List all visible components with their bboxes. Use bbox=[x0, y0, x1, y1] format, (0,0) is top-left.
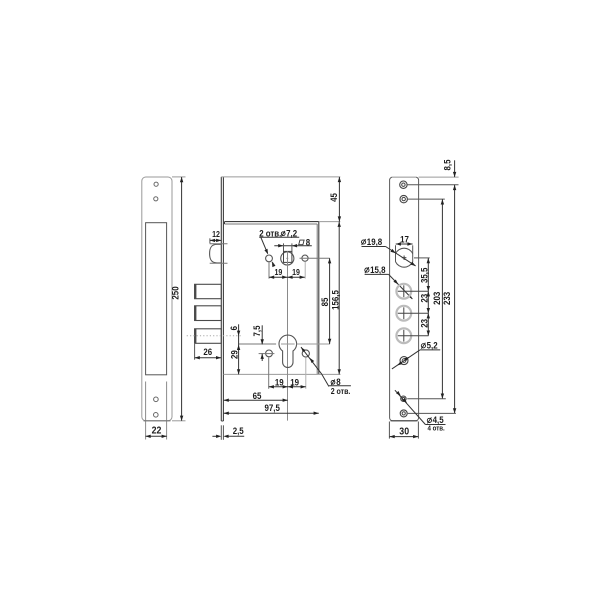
svg-text:19,8: 19,8 bbox=[367, 237, 383, 248]
svg-text:2,5: 2,5 bbox=[233, 425, 244, 436]
svg-text:203: 203 bbox=[432, 291, 443, 304]
svg-text:12: 12 bbox=[212, 230, 220, 240]
svg-text:85: 85 bbox=[319, 297, 330, 306]
svg-text:45: 45 bbox=[329, 193, 340, 202]
svg-text:19: 19 bbox=[290, 377, 299, 388]
svg-text:29: 29 bbox=[229, 350, 240, 359]
svg-text:7,5: 7,5 bbox=[251, 325, 262, 336]
svg-text:19: 19 bbox=[292, 268, 300, 278]
svg-text:6: 6 bbox=[229, 326, 240, 331]
svg-text:97,5: 97,5 bbox=[264, 403, 280, 414]
svg-text:35,5: 35,5 bbox=[419, 267, 430, 283]
svg-text:19: 19 bbox=[274, 268, 282, 278]
svg-text:250: 250 bbox=[170, 286, 181, 299]
svg-text:23: 23 bbox=[419, 319, 430, 328]
svg-text:22: 22 bbox=[152, 424, 162, 436]
svg-text:156,5: 156,5 bbox=[330, 290, 341, 310]
svg-text:23: 23 bbox=[419, 294, 430, 303]
svg-text:4 отв.: 4 отв. bbox=[428, 425, 445, 432]
svg-text:2 отв.: 2 отв. bbox=[331, 387, 351, 397]
svg-text:65: 65 bbox=[253, 391, 262, 402]
svg-text:19: 19 bbox=[275, 377, 284, 388]
svg-text:8,5: 8,5 bbox=[442, 159, 453, 170]
svg-text:17: 17 bbox=[400, 234, 409, 245]
svg-text:15,8: 15,8 bbox=[370, 265, 386, 276]
svg-text:5,2: 5,2 bbox=[427, 340, 438, 351]
svg-text:26: 26 bbox=[203, 346, 212, 357]
svg-text:30: 30 bbox=[399, 425, 409, 437]
svg-text:4,5: 4,5 bbox=[433, 415, 444, 426]
